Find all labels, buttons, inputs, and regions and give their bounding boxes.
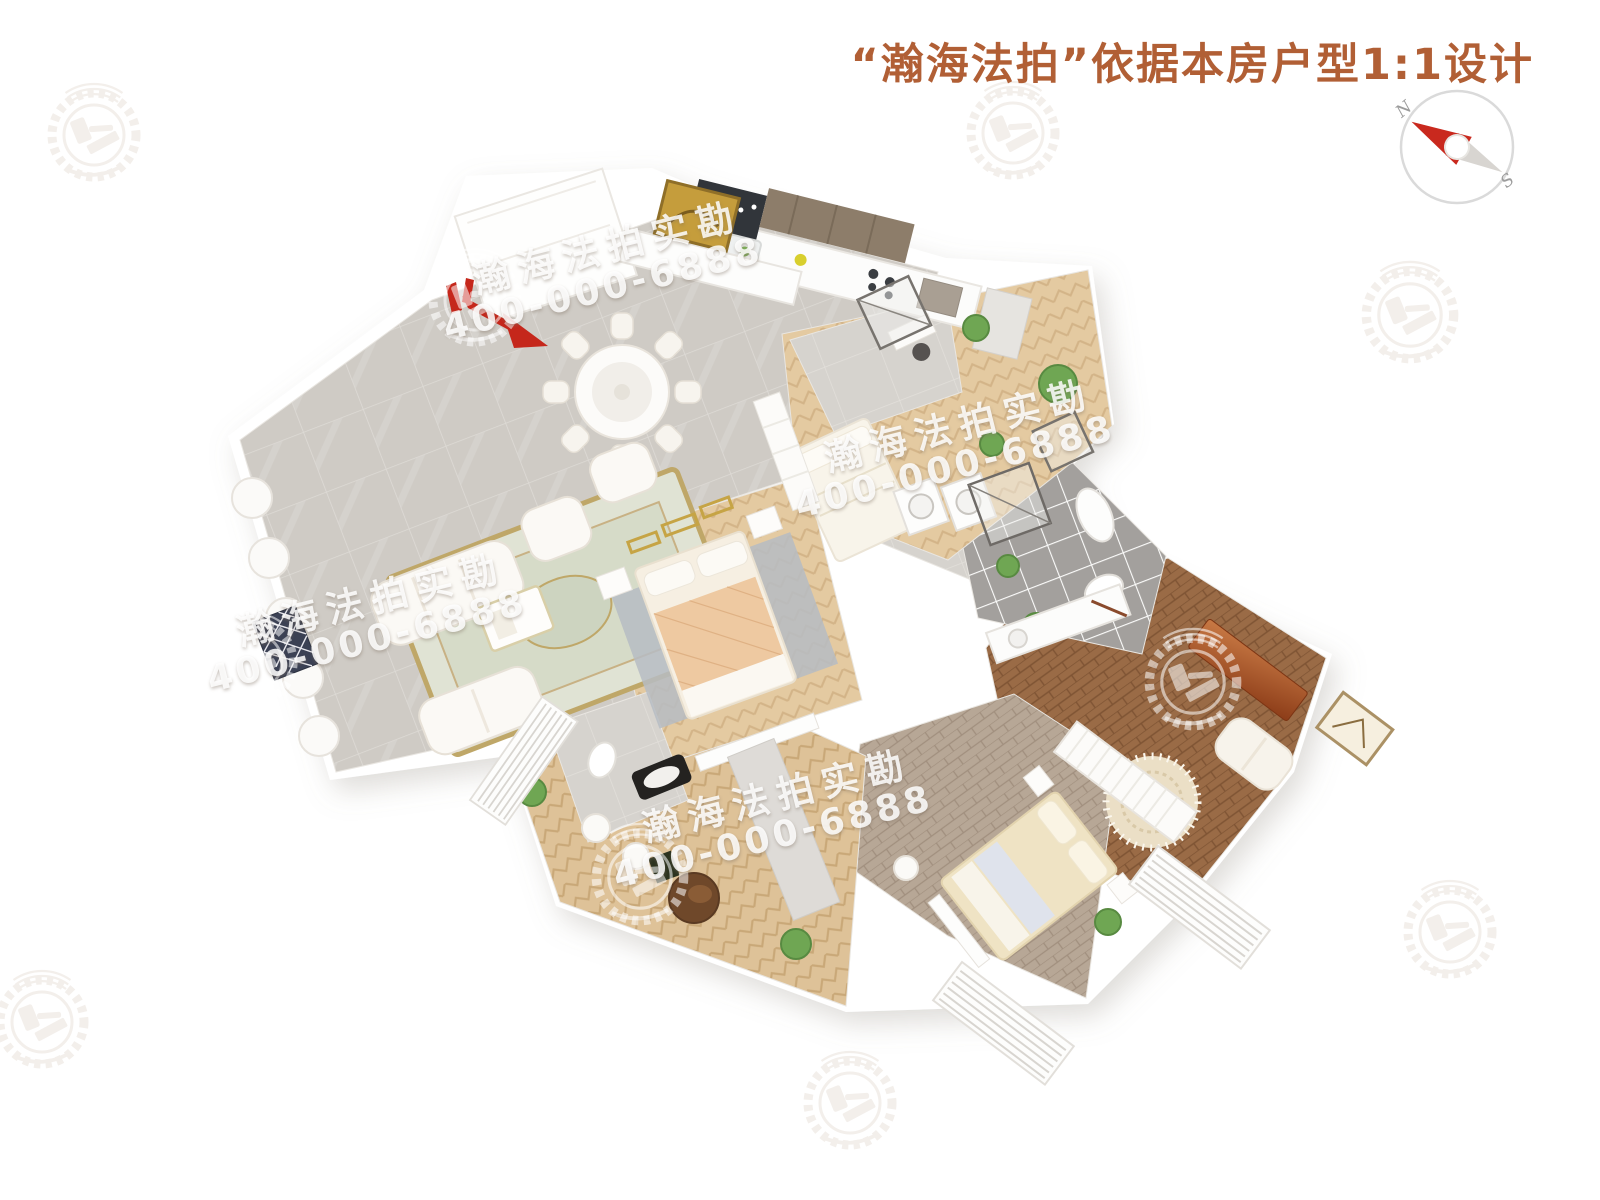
laurel-gavel-icon xyxy=(1408,881,1492,974)
laurel-gavel-icon xyxy=(0,971,84,1064)
picture-frame xyxy=(1317,692,1393,764)
compass-north-label: N xyxy=(1391,96,1417,122)
floorplan-render: N S xyxy=(0,0,1600,1200)
white-stool xyxy=(582,814,610,842)
page-title: “瀚海法拍”依据本房户型1:1设计 xyxy=(850,30,1534,92)
laurel-gavel-icon xyxy=(52,84,136,177)
stool xyxy=(894,856,918,880)
floorplan-page: N S “瀚海法拍”依据本房户型1:1设计 瀚海法拍实勘 400-000-688… xyxy=(0,0,1600,1200)
compass-icon: N S xyxy=(1391,91,1518,203)
laurel-gavel-icon xyxy=(1366,262,1453,359)
laurel-gavel-icon xyxy=(808,1052,892,1145)
laurel-gavel-icon xyxy=(971,82,1055,175)
compass-south-label: S xyxy=(1497,170,1519,193)
